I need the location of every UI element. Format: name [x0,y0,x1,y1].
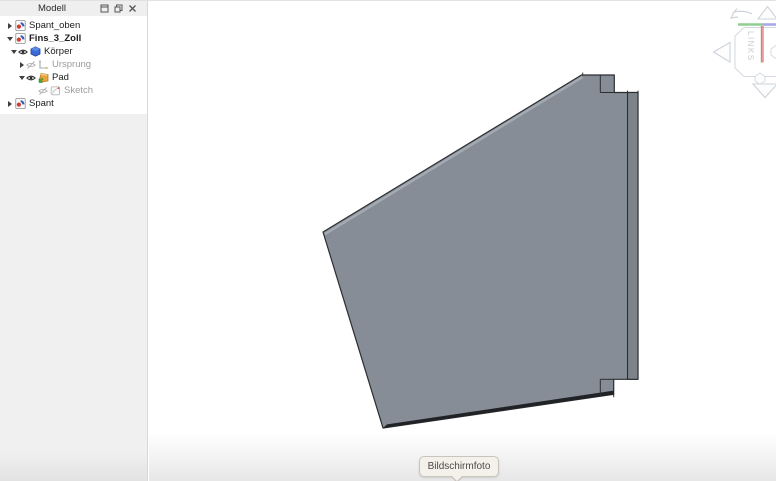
tree-item-label: Fins_3_Zoll [29,32,81,45]
tree-item-label: Spant_oben [29,19,80,32]
nav-arrow-down-icon[interactable] [753,84,776,98]
collapse-arrow-icon[interactable] [9,46,18,57]
tree-item-ursprung[interactable]: Ursprung [0,58,147,71]
freecad-document-icon [15,98,26,109]
tree-item-label: Ursprung [52,58,91,71]
freecad-window: Modell Spant_oben [0,0,776,481]
nav-arrow-up-icon[interactable] [758,7,776,20]
expand-arrow-icon[interactable] [4,98,15,109]
expand-arrow-icon[interactable] [4,20,15,31]
navigation-cube[interactable]: LINKS [714,7,776,98]
dock-icon[interactable] [100,4,109,13]
tree-item-fins-3-zoll[interactable]: Fins_3_Zoll [0,32,147,45]
tree-item-spant-oben[interactable]: Spant_oben [0,19,147,32]
visibility-on-eye-icon[interactable] [18,47,28,57]
panel-header: Modell [0,1,147,16]
collapse-arrow-icon[interactable] [17,72,26,83]
fin-main-face[interactable] [323,75,638,428]
visibility-off-eye-icon[interactable] [26,60,36,70]
tree-item-sketch[interactable]: Sketch [0,84,147,97]
tree-item-spant[interactable]: Spant [0,97,147,110]
panel-window-controls [100,4,147,13]
3d-viewport[interactable]: LINKS Bildschirmfoto [149,1,776,481]
nav-cube-face-label: LINKS [746,31,755,62]
tooltip-label: Bildschirmfoto [428,461,491,472]
visibility-off-eye-icon[interactable] [38,86,48,96]
partdesign-body-icon [30,46,41,57]
expand-arrow-icon[interactable] [17,59,26,70]
pad-feature-icon [38,72,49,83]
tree-item-label: Körper [44,45,73,58]
screenshot-tooltip: Bildschirmfoto [419,456,499,477]
tree-item-koerper[interactable]: Körper [0,45,147,58]
panel-title: Modell [0,3,66,14]
rotate-ccw-arrow-icon[interactable] [731,9,752,19]
origin-axes-icon [38,59,49,70]
part-scene: LINKS [149,1,776,481]
tree-item-label: Pad [52,71,69,84]
tree-item-label: Sketch [64,84,93,97]
tree-item-label: Spant [29,97,54,110]
model-tree-panel: Modell Spant_oben [0,1,148,481]
freecad-document-icon [15,33,26,44]
fin-spar-bar[interactable] [628,93,639,380]
sketch-icon [50,85,61,96]
freecad-document-icon [15,20,26,31]
close-icon[interactable] [128,4,137,13]
tree-item-pad[interactable]: Pad [0,71,147,84]
visibility-on-eye-icon[interactable] [26,73,36,83]
nav-arrow-left-icon[interactable] [714,43,731,63]
collapse-arrow-icon[interactable] [4,33,15,44]
float-window-icon[interactable] [114,4,123,13]
model-tree: Spant_oben Fins_3_Zoll Körper [0,16,147,114]
